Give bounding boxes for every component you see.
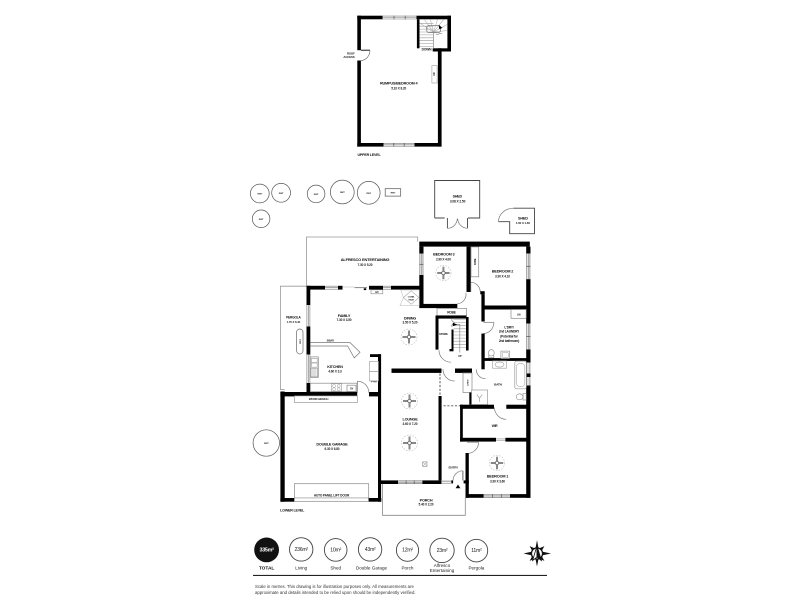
svg-text:6.30 X 6.80: 6.30 X 6.80 [325, 447, 340, 451]
svg-text:3.60 X 7.20: 3.60 X 7.20 [403, 422, 418, 426]
svg-text:11m²: 11m² [471, 548, 482, 554]
svg-text:KITCHEN: KITCHEN [327, 365, 343, 369]
svg-text:BEDROOM 1: BEDROOM 1 [487, 475, 508, 479]
svg-text:RWT: RWT [300, 338, 302, 343]
svg-text:Entertaining: Entertaining [430, 568, 455, 573]
svg-text:Living: Living [295, 565, 307, 570]
svg-text:3.08 X 2.50: 3.08 X 2.50 [450, 200, 466, 204]
svg-text:5.40 X 2.20: 5.40 X 2.20 [419, 503, 434, 507]
svg-text:3.90 X 3.60: 3.90 X 3.60 [490, 479, 505, 483]
svg-text:RWT: RWT [259, 219, 264, 221]
svg-text:3.90 X 4.10: 3.90 X 4.10 [495, 275, 510, 279]
svg-text:7.30 X 5.20: 7.30 X 5.20 [358, 263, 373, 267]
svg-text:335m²: 335m² [259, 547, 274, 553]
svg-text:RWT: RWT [264, 443, 269, 445]
svg-text:23m²: 23m² [437, 548, 448, 554]
svg-text:RWT: RWT [340, 192, 345, 194]
svg-text:SHED: SHED [453, 195, 463, 199]
svg-text:SHED: SHED [518, 216, 528, 220]
svg-text:7.30 X 3.50: 7.30 X 3.50 [337, 318, 352, 322]
svg-text:ROBE: ROBE [447, 311, 456, 315]
svg-text:B/BAR: B/BAR [327, 339, 334, 342]
svg-text:LOUNGE: LOUNGE [402, 418, 418, 422]
svg-text:RUMPUS/BEDROOM 4: RUMPUS/BEDROOM 4 [380, 82, 419, 86]
svg-text:AUTO PANEL LIFT DOOR: AUTO PANEL LIFT DOOR [314, 494, 350, 498]
svg-text:TOTAL: TOTAL [259, 566, 275, 572]
svg-text:approximate and details intend: approximate and details intended to be r… [255, 590, 416, 595]
svg-text:P'TRY: P'TRY [371, 382, 377, 384]
svg-text:3.50 X 5.20: 3.50 X 5.20 [403, 321, 418, 325]
svg-text:LIN: LIN [517, 313, 521, 316]
svg-text:OV: OV [350, 388, 354, 391]
svg-text:12m²: 12m² [402, 548, 413, 554]
svg-text:FAMILY: FAMILY [338, 314, 351, 318]
svg-text:WORK BENCH: WORK BENCH [309, 397, 329, 401]
svg-text:2nd LAUNDRY: 2nd LAUNDRY [499, 330, 520, 334]
svg-text:COMB-: COMB- [408, 296, 415, 298]
svg-text:RWT: RWT [391, 192, 396, 194]
svg-text:Pergola: Pergola [468, 565, 484, 570]
svg-text:236m²: 236m² [294, 547, 308, 553]
svg-text:ROBE: ROBE [474, 258, 477, 265]
svg-text:ALFRESCO ENTERTAINING: ALFRESCO ENTERTAINING [341, 257, 390, 262]
svg-text:Double Garage: Double Garage [356, 565, 388, 570]
svg-text:Porch: Porch [401, 565, 413, 570]
svg-text:1.70 X 6.40: 1.70 X 6.40 [287, 320, 301, 324]
svg-text:RWT: RWT [314, 194, 319, 196]
svg-text:RWT: RWT [279, 193, 284, 195]
svg-text:HEAT: HEAT [409, 298, 415, 301]
svg-text:UP: UP [458, 354, 462, 358]
svg-text:43m²: 43m² [365, 547, 376, 553]
svg-text:4.60 X 3.3: 4.60 X 3.3 [328, 369, 342, 373]
svg-text:DINING: DINING [404, 316, 416, 320]
svg-text:STORE: STORE [439, 332, 448, 336]
svg-text:LINEN: LINEN [468, 379, 470, 386]
svg-text:UPPER LEVEL: UPPER LEVEL [358, 153, 382, 157]
svg-text:RWT: RWT [366, 193, 371, 195]
svg-text:RWT: RWT [257, 194, 262, 196]
svg-text:WIR: WIR [492, 424, 499, 428]
svg-text:5.10 X 8.20: 5.10 X 8.20 [391, 87, 406, 91]
svg-text:ACCESS: ACCESS [343, 55, 354, 59]
svg-text:A/C: A/C [375, 291, 379, 294]
svg-text:DOWN: DOWN [422, 47, 433, 51]
svg-text:BATH: BATH [494, 383, 503, 387]
svg-text:A/C: A/C [433, 72, 436, 76]
svg-text:10m²: 10m² [330, 547, 341, 553]
svg-text:ENTRY: ENTRY [448, 466, 459, 470]
svg-text:2.90 X 4.00: 2.90 X 4.00 [436, 257, 451, 261]
svg-text:BEDROOM 2: BEDROOM 2 [492, 270, 513, 274]
svg-text:2nd bathroom): 2nd bathroom) [499, 339, 519, 343]
svg-text:Shed: Shed [330, 565, 341, 570]
svg-text:BEDROOM 3: BEDROOM 3 [433, 252, 454, 256]
svg-text:LOWER LEVEL: LOWER LEVEL [280, 509, 305, 513]
svg-text:Scale in metres. This drawing: Scale in metres. This drawing is for ill… [255, 584, 415, 589]
svg-text:1.60 X 1.60: 1.60 X 1.60 [516, 221, 530, 225]
svg-text:DOUBLE GARAGE: DOUBLE GARAGE [316, 442, 348, 446]
